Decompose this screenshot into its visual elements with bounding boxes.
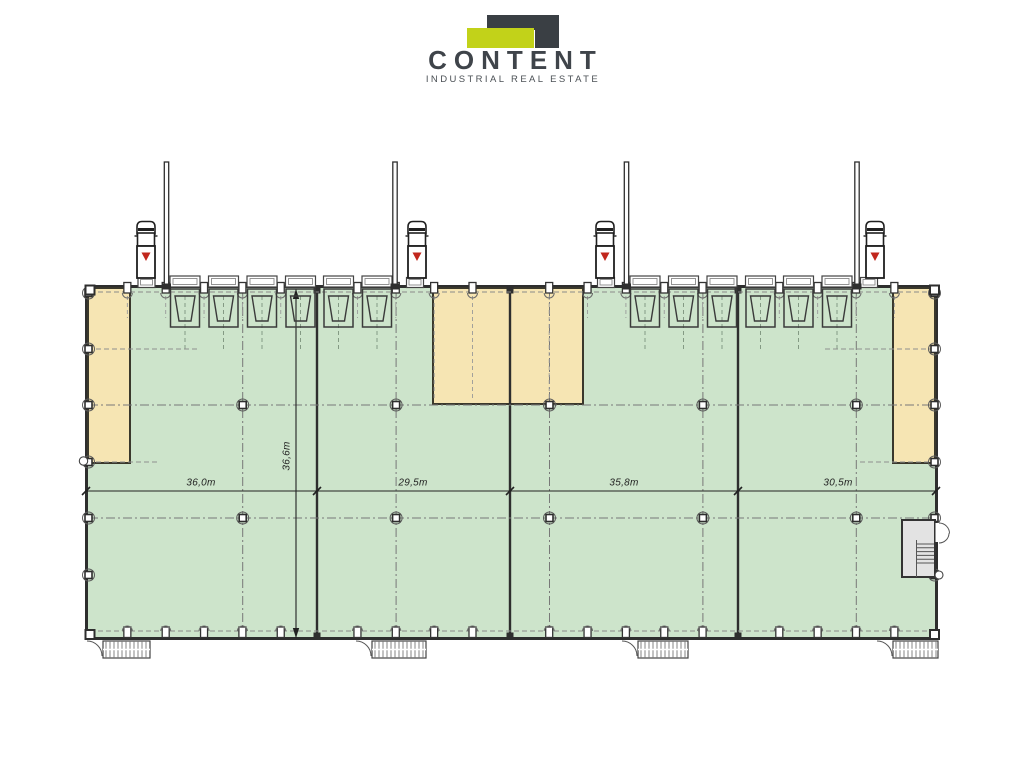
- dock-door: [286, 276, 316, 287]
- pilaster: [392, 627, 399, 638]
- dock-door: [247, 276, 277, 287]
- column-marker: [546, 402, 553, 409]
- pilaster: [354, 627, 361, 638]
- pilaster: [814, 283, 821, 294]
- pole-base: [391, 284, 400, 290]
- column-marker: [85, 515, 92, 522]
- pilaster: [584, 627, 591, 638]
- staircase-room-walls: [902, 520, 935, 577]
- pole-base: [853, 284, 862, 290]
- trucks: [135, 222, 887, 279]
- office-area: [88, 288, 130, 463]
- dock-door: [746, 276, 776, 287]
- dimension-label-unit-1: 36,0m: [186, 478, 215, 489]
- pilaster: [546, 283, 553, 294]
- pilaster: [277, 627, 284, 638]
- fence-pole: [164, 162, 168, 288]
- pilaster: [277, 283, 284, 294]
- column-marker: [393, 515, 400, 522]
- wall-door-marker: [79, 457, 87, 465]
- column-marker: [546, 515, 553, 522]
- pilaster: [354, 283, 361, 294]
- pilaster: [814, 627, 821, 638]
- truck-trailer: [866, 246, 884, 278]
- wall-door-marker: [935, 571, 943, 579]
- pilaster: [776, 283, 783, 294]
- door-swing: [87, 641, 102, 656]
- column-marker: [931, 459, 938, 466]
- pilaster: [431, 283, 438, 294]
- column-marker: [931, 402, 938, 409]
- truck-windshield: [867, 228, 883, 231]
- column-marker: [931, 346, 938, 353]
- divider-junction: [735, 633, 742, 640]
- office-area: [433, 288, 583, 404]
- floorplan-svg: [0, 0, 1024, 768]
- building-plan: [87, 286, 937, 640]
- corner-column: [86, 286, 95, 295]
- door-swing: [356, 641, 371, 656]
- pilaster: [622, 627, 629, 638]
- column-marker: [699, 402, 706, 409]
- fence-pole: [855, 162, 859, 288]
- yard-poles: [162, 162, 862, 290]
- pilaster: [431, 627, 438, 638]
- pilaster: [124, 627, 131, 638]
- fence-pole: [624, 162, 628, 288]
- truck-cab: [866, 222, 884, 235]
- pilaster: [469, 627, 476, 638]
- pilaster: [546, 627, 553, 638]
- truck-cab-body: [867, 233, 884, 246]
- pilaster: [124, 283, 131, 294]
- dock-door: [822, 276, 852, 287]
- pilaster: [699, 627, 706, 638]
- truck-cab: [596, 222, 614, 235]
- truck-icon: [135, 222, 158, 279]
- office-area: [893, 288, 935, 463]
- pilaster: [201, 283, 208, 294]
- truck-cab-body: [409, 233, 426, 246]
- pilaster: [584, 283, 591, 294]
- dock-door: [324, 276, 354, 287]
- pilaster: [162, 627, 169, 638]
- pilaster: [776, 627, 783, 638]
- pilaster: [661, 627, 668, 638]
- dock-door: [784, 276, 814, 287]
- truck-cab-body: [138, 233, 155, 246]
- truck-icon: [406, 222, 429, 279]
- dock-door: [170, 276, 200, 287]
- column-marker: [85, 572, 92, 579]
- pole-base: [622, 284, 631, 290]
- dimension-label-unit-3: 35,8m: [609, 478, 638, 489]
- corner-column: [930, 286, 939, 295]
- truck-trailer: [408, 246, 426, 278]
- column-marker: [853, 402, 860, 409]
- truck-trailer: [137, 246, 155, 278]
- pilaster: [853, 627, 860, 638]
- dimension-label-unit-4: 30,5m: [823, 478, 852, 489]
- door-swing: [622, 641, 637, 656]
- door-swing: [939, 523, 950, 534]
- truck-windshield: [138, 228, 154, 231]
- truck-cab: [137, 222, 155, 235]
- pilaster: [699, 283, 706, 294]
- truck-trailer: [596, 246, 614, 278]
- dimension-label-unit-2: 29,5m: [398, 478, 427, 489]
- column-marker: [393, 402, 400, 409]
- column-marker: [699, 515, 706, 522]
- truck-windshield: [409, 228, 425, 231]
- pole-base: [162, 284, 171, 290]
- truck-cab: [408, 222, 426, 235]
- truck-windshield: [597, 228, 613, 231]
- truck-icon: [864, 222, 887, 279]
- door-swing: [877, 641, 892, 656]
- divider-junction: [314, 633, 321, 640]
- dock-door: [669, 276, 699, 287]
- dimension-label-depth: 36,6m: [282, 441, 293, 470]
- pilaster: [239, 627, 246, 638]
- pilaster: [201, 627, 208, 638]
- column-marker: [239, 402, 246, 409]
- dock-door: [209, 276, 239, 287]
- dock-door: [630, 276, 660, 287]
- truck-icon: [594, 222, 617, 279]
- corner-column: [86, 630, 95, 639]
- column-marker: [239, 515, 246, 522]
- pilaster: [891, 627, 898, 638]
- pilaster: [661, 283, 668, 294]
- page: CONTENT INDUSTRIAL REAL ESTATE 36,0m 29,…: [0, 0, 1024, 768]
- pilaster: [239, 283, 246, 294]
- corner-column: [930, 630, 939, 639]
- column-marker: [85, 402, 92, 409]
- column-marker: [853, 515, 860, 522]
- column-marker: [85, 346, 92, 353]
- dock-door: [707, 276, 737, 287]
- pilaster: [469, 283, 476, 294]
- door-opening: [936, 523, 941, 542]
- divider-junction: [507, 633, 514, 640]
- truck-cab-body: [597, 233, 614, 246]
- pilaster: [891, 283, 898, 294]
- exterior-stairs: [87, 641, 938, 658]
- dock-door: [362, 276, 392, 287]
- fence-pole: [393, 162, 397, 288]
